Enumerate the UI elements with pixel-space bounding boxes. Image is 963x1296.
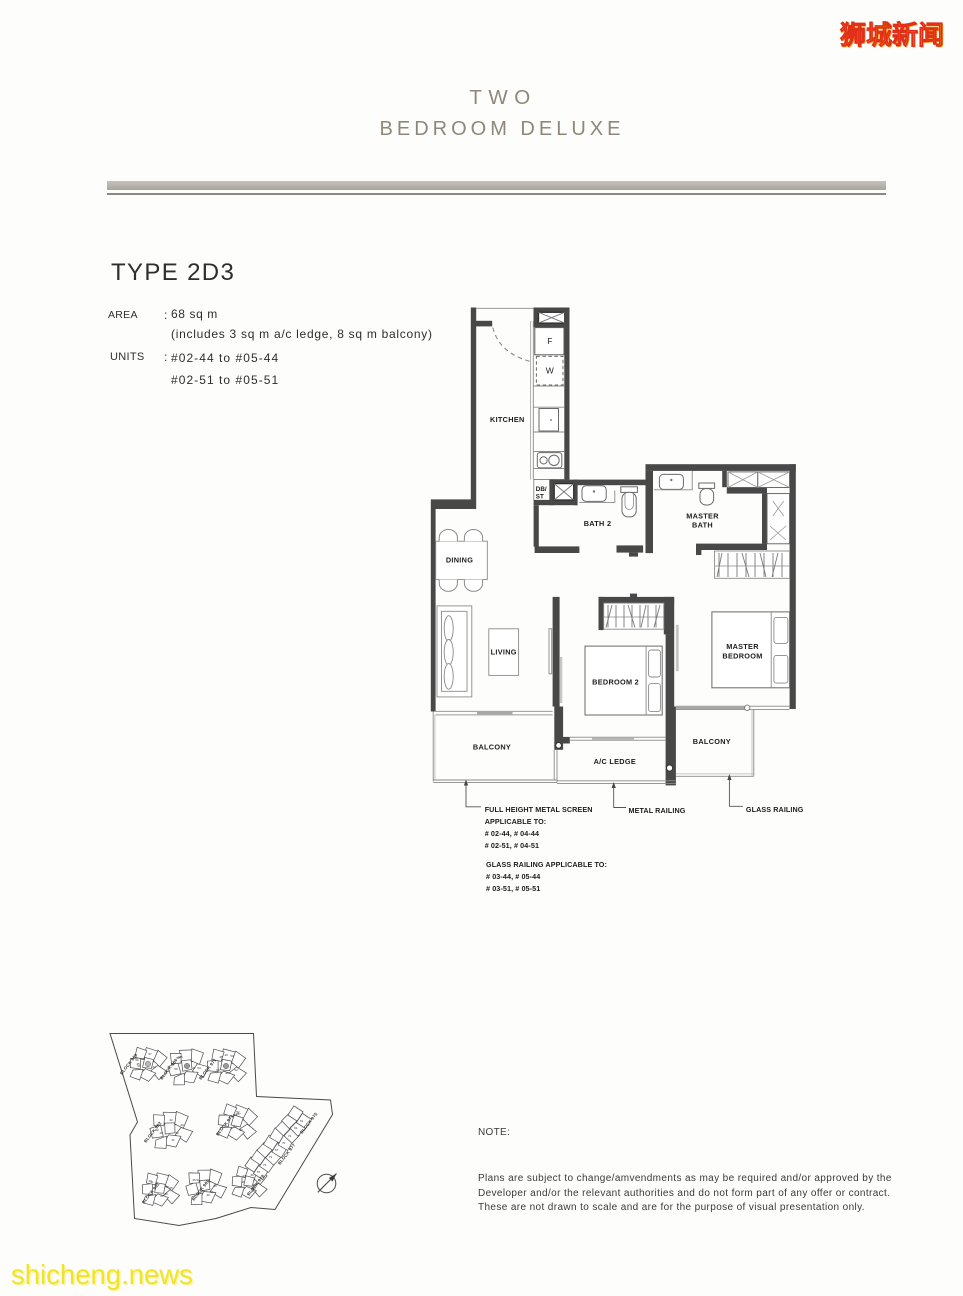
svg-text:54: 54 xyxy=(196,1178,200,1182)
svg-text:# 02-44, # 04-44: # 02-44, # 04-44 xyxy=(485,829,539,838)
svg-text:56: 56 xyxy=(140,1057,144,1061)
svg-text:MASTER: MASTER xyxy=(686,512,719,521)
svg-text:45: 45 xyxy=(136,1062,140,1066)
svg-text:46: 46 xyxy=(159,1131,163,1135)
svg-text:APPLICABLE TO:: APPLICABLE TO: xyxy=(485,817,547,826)
svg-text:57: 57 xyxy=(275,1148,279,1152)
svg-text:W: W xyxy=(546,366,554,376)
svg-text:ST: ST xyxy=(536,493,544,500)
svg-text:66: 66 xyxy=(213,1184,217,1188)
svg-text:METAL RAILING: METAL RAILING xyxy=(629,806,686,815)
svg-text:56: 56 xyxy=(174,1067,178,1071)
svg-text:DINING: DINING xyxy=(446,556,473,565)
svg-text:66: 66 xyxy=(210,1190,214,1194)
svg-text:# 03-51, # 05-51: # 03-51, # 05-51 xyxy=(486,884,540,893)
svg-text:F: F xyxy=(547,336,552,346)
svg-text:63: 63 xyxy=(239,1128,243,1132)
svg-text:41: 41 xyxy=(150,1180,154,1184)
svg-text:45: 45 xyxy=(192,1178,196,1182)
svg-text:63: 63 xyxy=(294,1126,298,1130)
svg-text:41: 41 xyxy=(241,1180,245,1184)
svg-text:DB/: DB/ xyxy=(536,486,547,493)
svg-text:BEDROOM: BEDROOM xyxy=(722,652,762,661)
svg-text:BEDROOM 2: BEDROOM 2 xyxy=(592,678,639,687)
svg-text:47: 47 xyxy=(192,1066,196,1070)
svg-text:BALCONY: BALCONY xyxy=(693,737,731,746)
svg-text:BATH 2: BATH 2 xyxy=(584,519,612,528)
svg-text:48: 48 xyxy=(219,1055,223,1059)
svg-text:71: 71 xyxy=(269,1155,273,1159)
svg-text:BALCONY: BALCONY xyxy=(473,743,511,752)
svg-text:42: 42 xyxy=(175,1131,179,1135)
svg-text:67: 67 xyxy=(148,1052,152,1056)
svg-text:GLASS RAILING: GLASS RAILING xyxy=(746,805,804,814)
svg-text:A/C LEDGE: A/C LEDGE xyxy=(594,757,636,766)
svg-text:61: 61 xyxy=(300,1119,304,1123)
svg-text:70: 70 xyxy=(282,1141,286,1145)
svg-text:50: 50 xyxy=(230,1054,234,1058)
svg-text:41: 41 xyxy=(171,1138,175,1142)
svg-text:MASTER: MASTER xyxy=(726,642,759,651)
svg-text:52: 52 xyxy=(234,1068,238,1072)
svg-text:BATH: BATH xyxy=(692,521,713,530)
svg-text:KITCHEN: KITCHEN xyxy=(490,415,525,424)
svg-text:FULL HEIGHT METAL SCREEN: FULL HEIGHT METAL SCREEN xyxy=(485,805,593,814)
svg-text:42: 42 xyxy=(169,1118,173,1122)
svg-text:# 03-44, # 05-44: # 03-44, # 05-44 xyxy=(486,872,540,881)
svg-text:69: 69 xyxy=(216,1068,220,1072)
svg-text:40: 40 xyxy=(224,1053,228,1057)
svg-text:74: 74 xyxy=(288,1134,292,1138)
svg-text:67: 67 xyxy=(257,1170,261,1174)
svg-text:# 02-51, # 04-51: # 02-51, # 04-51 xyxy=(485,841,539,850)
svg-text:40: 40 xyxy=(225,1071,229,1075)
svg-text:46: 46 xyxy=(164,1192,168,1196)
svg-text:52: 52 xyxy=(236,1110,240,1114)
svg-text:42: 42 xyxy=(152,1065,156,1069)
svg-text:40: 40 xyxy=(180,1123,184,1127)
svg-text:48: 48 xyxy=(165,1185,169,1189)
svg-text:53: 53 xyxy=(233,1125,237,1129)
svg-text:74: 74 xyxy=(263,1163,267,1167)
svg-text:67: 67 xyxy=(160,1194,164,1198)
svg-text:54: 54 xyxy=(197,1066,201,1070)
svg-text:LIVING: LIVING xyxy=(491,648,517,657)
svg-text:GLASS RAILING APPLICABLE TO:: GLASS RAILING APPLICABLE TO: xyxy=(486,860,607,869)
svg-text:47: 47 xyxy=(242,1174,246,1178)
svg-text:65: 65 xyxy=(169,1186,173,1190)
